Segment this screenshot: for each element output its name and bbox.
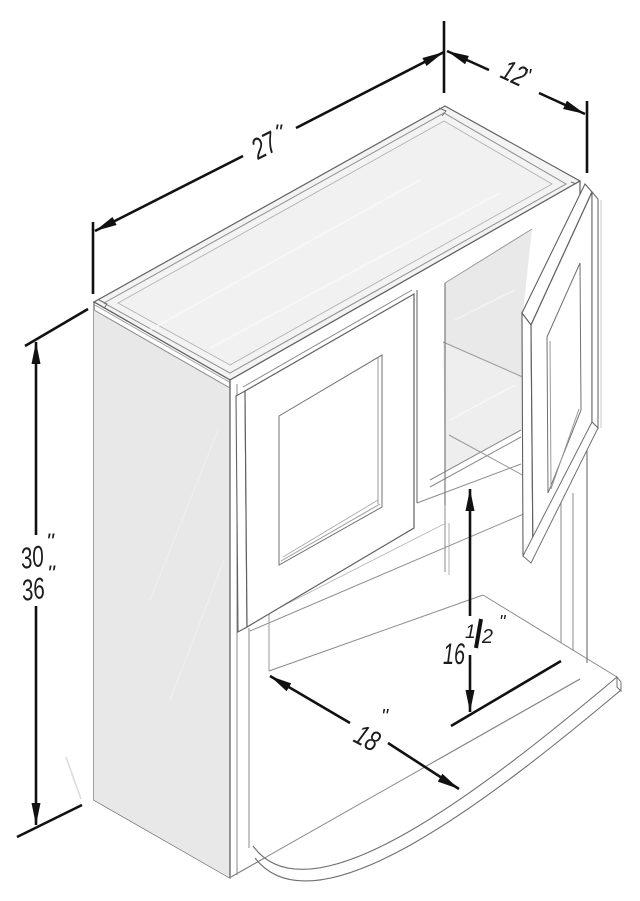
svg-text:": " (47, 561, 56, 586)
svg-text:": " (524, 66, 532, 88)
svg-text:16: 16 (443, 638, 465, 671)
svg-text:36: 36 (19, 572, 47, 608)
svg-text:1: 1 (465, 622, 476, 643)
svg-text:2: 2 (481, 626, 493, 648)
svg-text:": " (46, 529, 55, 554)
svg-text:": " (381, 706, 389, 728)
svg-text:": " (274, 120, 283, 145)
svg-text:30: 30 (18, 540, 46, 576)
